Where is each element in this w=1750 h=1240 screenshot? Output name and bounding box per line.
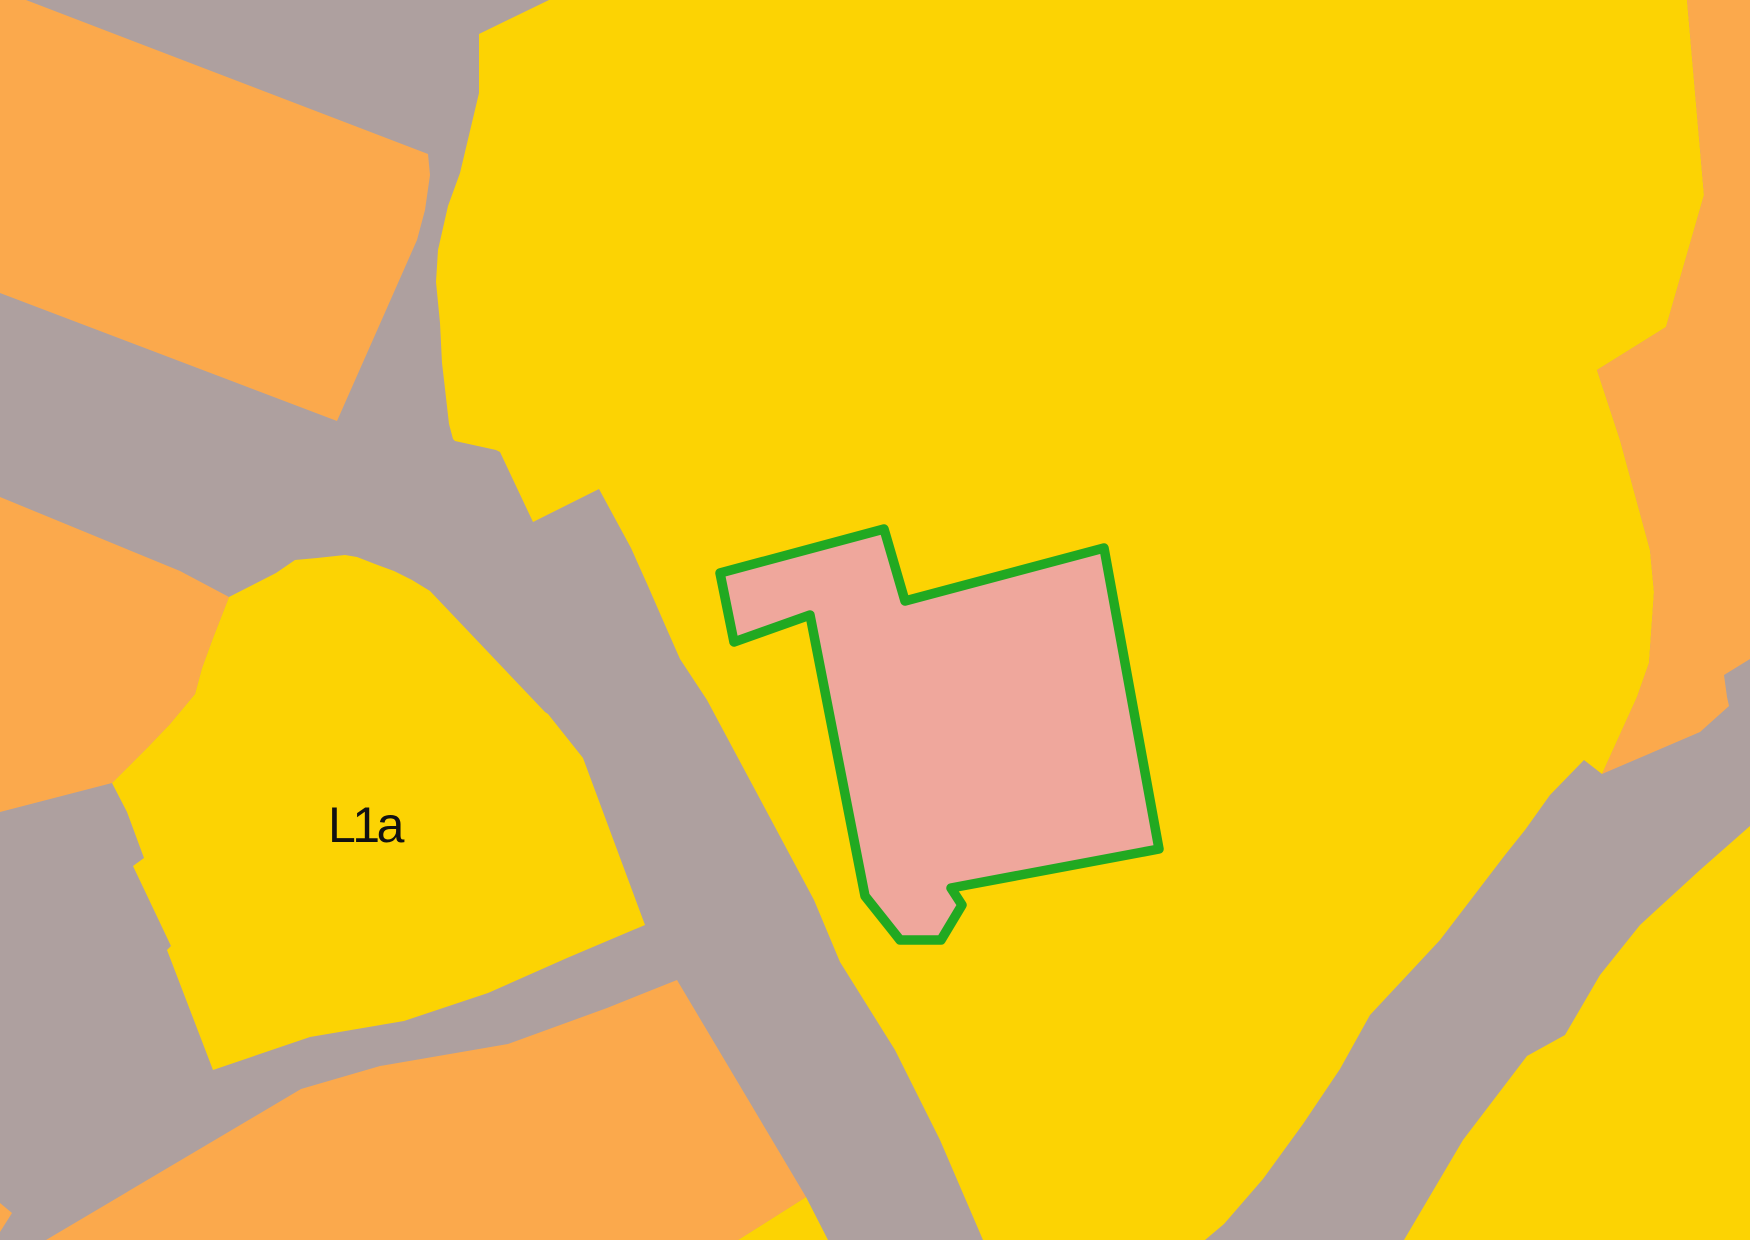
svg-text:L1a: L1a xyxy=(328,797,405,853)
